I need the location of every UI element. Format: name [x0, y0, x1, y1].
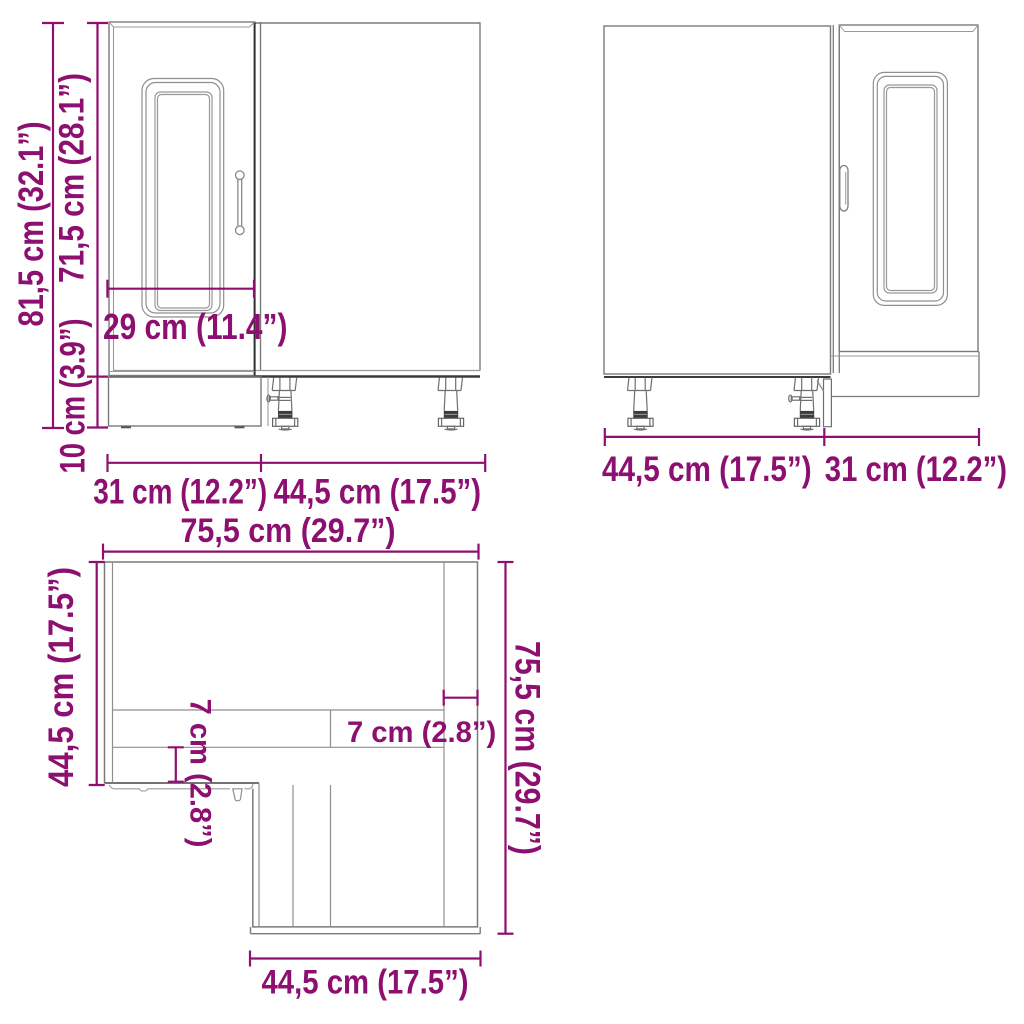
svg-text:10 cm (3.9”): 10 cm (3.9”)	[54, 319, 93, 474]
svg-text:75,5 cm (29.7”): 75,5 cm (29.7”)	[508, 641, 547, 855]
svg-text:44,5 cm (17.5”): 44,5 cm (17.5”)	[274, 472, 482, 511]
svg-text:44,5 cm (17.5”): 44,5 cm (17.5”)	[42, 567, 81, 787]
svg-text:7 cm (2.8”): 7 cm (2.8”)	[347, 716, 496, 749]
svg-text:31 cm (12.2”): 31 cm (12.2”)	[93, 472, 267, 511]
svg-text:31 cm (12.2”): 31 cm (12.2”)	[825, 450, 1007, 489]
svg-text:75,5 cm (29.7”): 75,5 cm (29.7”)	[181, 512, 396, 550]
svg-text:81,5 cm (32.1”): 81,5 cm (32.1”)	[12, 122, 51, 327]
svg-text:44,5 cm (17.5”): 44,5 cm (17.5”)	[262, 964, 469, 1002]
svg-text:7 cm (2.8”): 7 cm (2.8”)	[184, 699, 217, 848]
svg-text:44,5 cm (17.5”): 44,5 cm (17.5”)	[602, 450, 812, 489]
svg-text:29 cm (11.4”): 29 cm (11.4”)	[103, 306, 288, 347]
svg-text:71,5 cm (28.1”): 71,5 cm (28.1”)	[53, 73, 92, 283]
